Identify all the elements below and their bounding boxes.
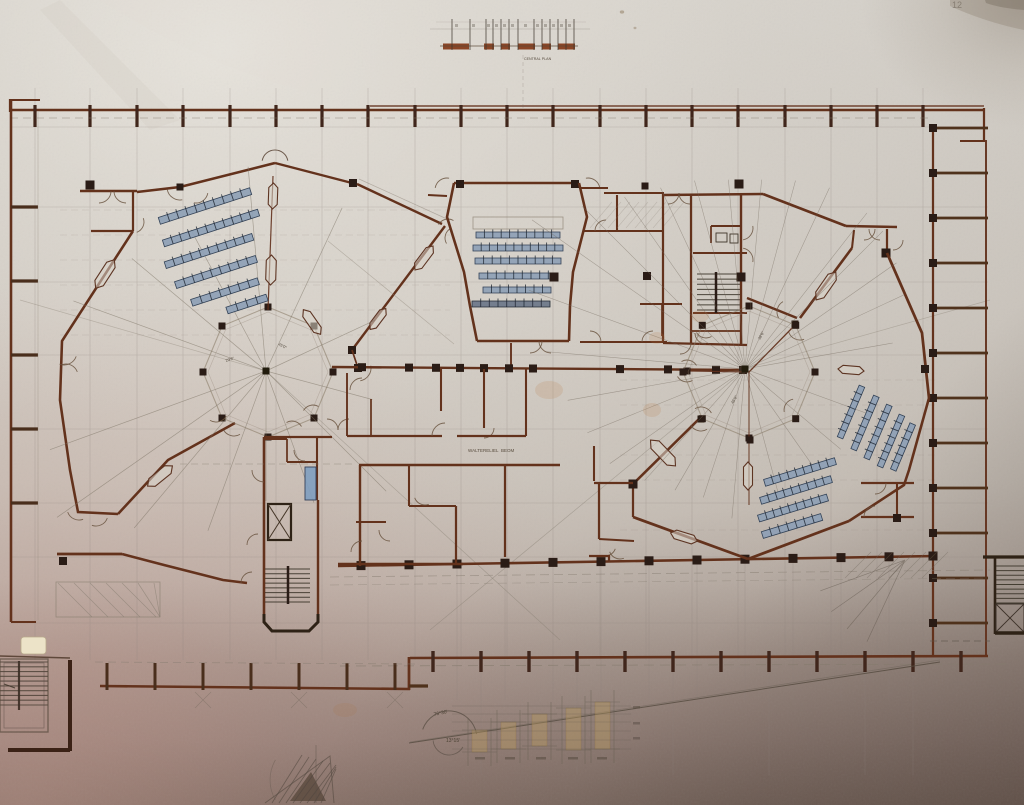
svg-text:12: 12 [952, 0, 962, 10]
svg-text:CENTRAL PLAN: CENTRAL PLAN [524, 57, 552, 61]
svg-text:13°15′: 13°15′ [446, 738, 460, 744]
svg-text:WALTERELIEL BEOM: WALTERELIEL BEOM [468, 448, 515, 453]
